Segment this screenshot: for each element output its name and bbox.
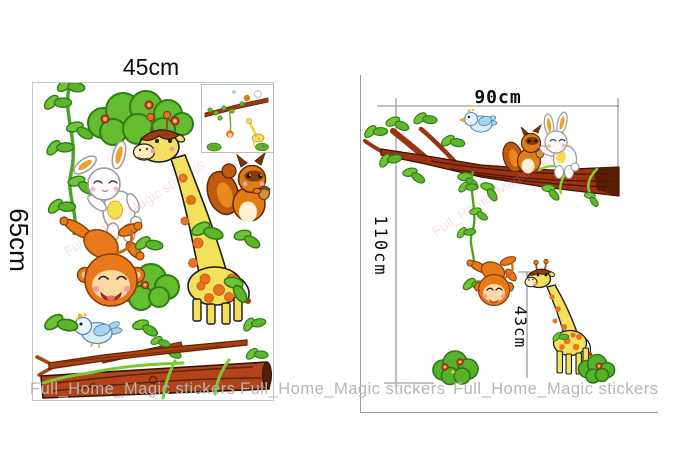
preview-inset-art: [202, 85, 273, 152]
product-image: 45cm 65cm 90cm 110cm 43cm Full_Home_Magi…: [0, 0, 673, 456]
giraffe: [525, 259, 592, 374]
squirrel-sticker: [202, 153, 270, 223]
brand-watermark: Full_Home_Magic stickers: [453, 380, 658, 399]
applied-layout-art: [361, 75, 661, 412]
sheet-width-label: 45cm: [122, 54, 180, 81]
brand-watermark: Full_Home_Magic stickers: [30, 380, 235, 399]
sheet-height-label: 65cm: [6, 200, 32, 280]
bluebird: [460, 109, 497, 132]
bluebird-sticker: [68, 313, 122, 348]
brand-watermark: Full_Home_Magic stickers: [240, 380, 445, 399]
applied-layout-panel: [360, 75, 658, 413]
preview-inset: [201, 84, 274, 153]
